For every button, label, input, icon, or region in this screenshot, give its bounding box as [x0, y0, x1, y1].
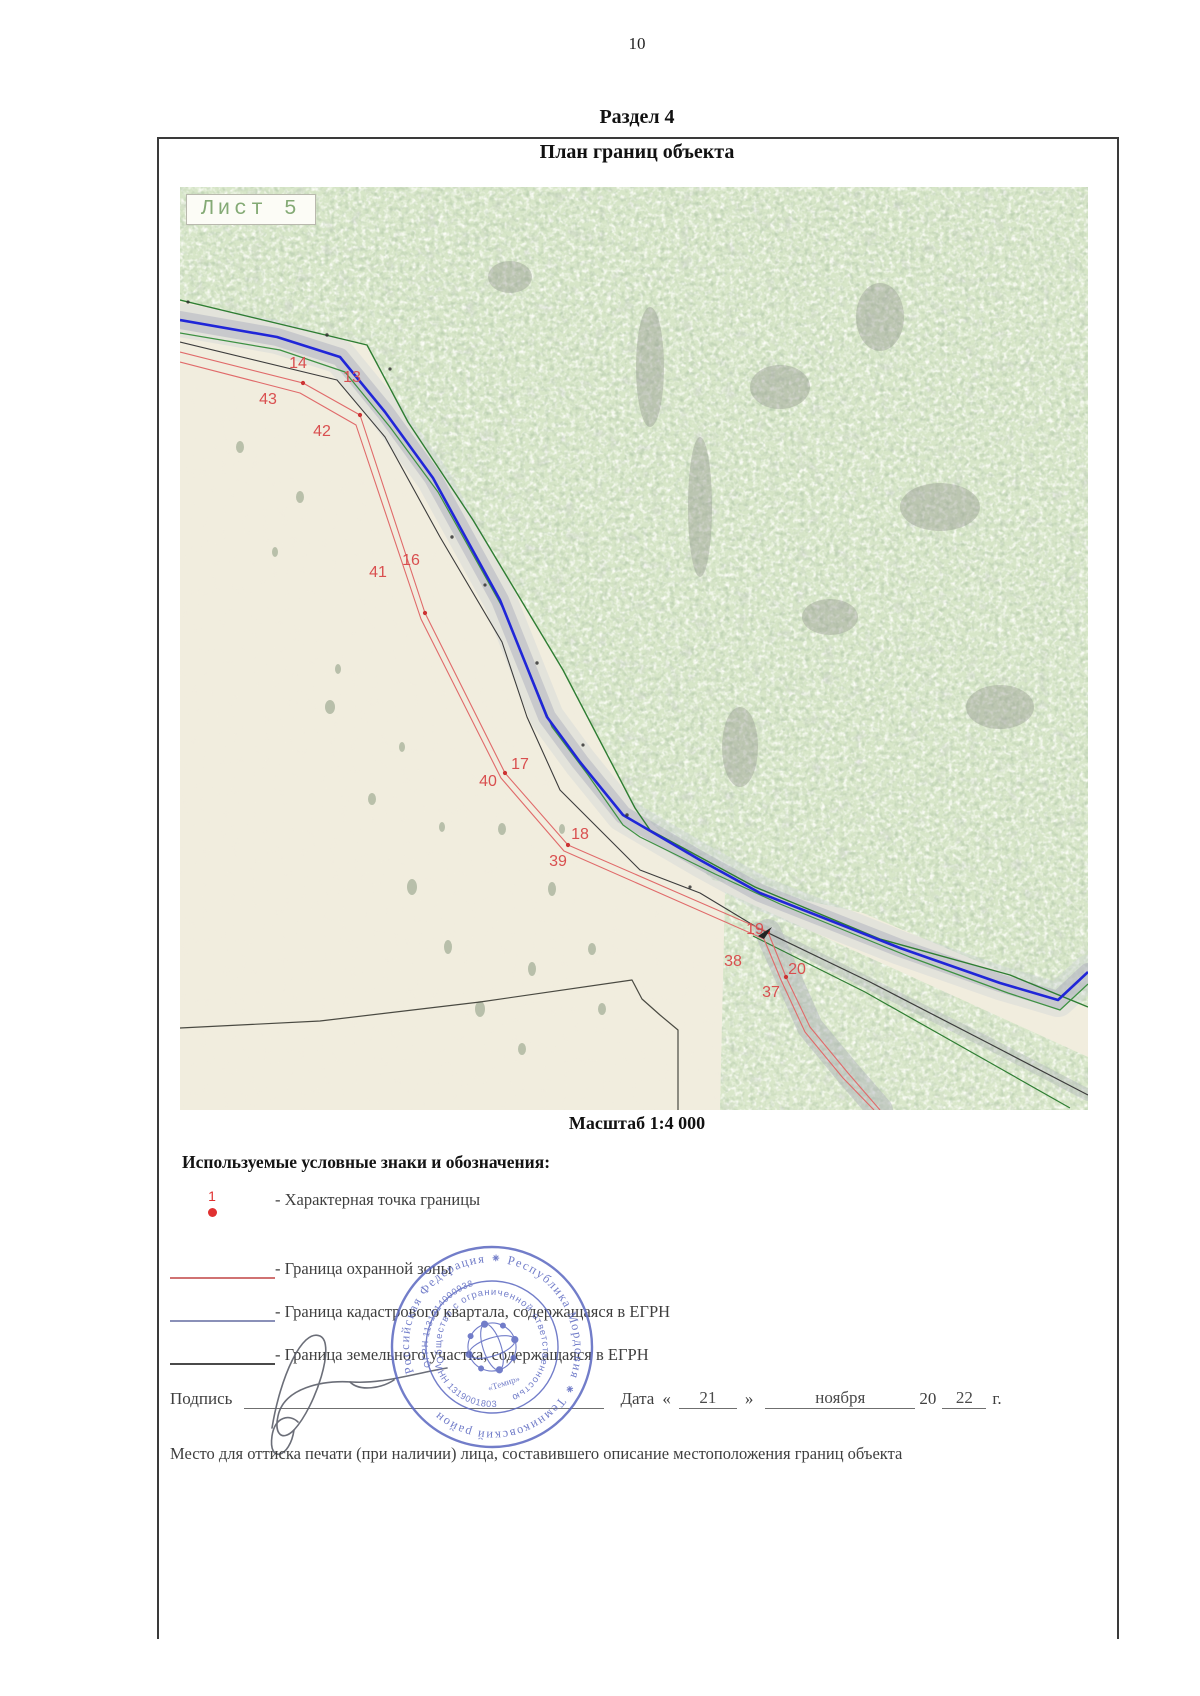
line-sample [170, 1363, 275, 1365]
sheet-label: Лист 5 [186, 194, 316, 225]
boundary-point-label: 41 [369, 564, 387, 581]
signature-row: Подпись Дата « 21 » ноября 20 22 г. [170, 1388, 1050, 1409]
page-number: 10 [157, 34, 1117, 54]
document-title: План границ объекта [157, 141, 1117, 164]
legend-items: 1- Характерная точка границы- Граница ох… [170, 1187, 1040, 1376]
svg-text:Российская Федерация ⁕ Республ: Российская Федерация ⁕ Республика Мордов… [387, 1242, 597, 1452]
boundary-point-label: 18 [571, 826, 589, 843]
date-year-suffix: г. [992, 1389, 1001, 1409]
point-dot-icon [208, 1208, 217, 1217]
boundary-point-label: 16 [402, 552, 420, 569]
signature-label: Подпись [170, 1389, 232, 1409]
legend-item: 1- Характерная точка границы [170, 1187, 1040, 1247]
boundary-line-symbol [170, 1354, 275, 1356]
section-title: Раздел 4 [157, 106, 1117, 129]
boundary-point-label: 20 [788, 961, 806, 978]
stamp-center-name: «Темир» [486, 1373, 521, 1393]
date-month: ноября [765, 1388, 915, 1409]
boundary-point-label: 40 [479, 773, 497, 790]
boundary-point-label: 43 [259, 391, 277, 408]
point-number: 1 [208, 1189, 216, 1203]
boundary-point-label: 37 [762, 984, 780, 1001]
date-year: 22 [942, 1388, 986, 1409]
date-label: Дата [620, 1389, 654, 1409]
legend-item: - Граница земельного участка, содержащая… [170, 1333, 1040, 1376]
boundary-point-label: 38 [724, 953, 742, 970]
date-year-prefix: 20 [919, 1389, 936, 1409]
boundary-point-label: 17 [511, 756, 529, 773]
date-quote-close: » [745, 1389, 754, 1409]
date-quote-open: « [662, 1389, 671, 1409]
boundary-point-label: 39 [549, 853, 567, 870]
legend-item-label: - Характерная точка границы [275, 1187, 480, 1210]
satellite-map-image: 1443134241161740183919382037 [180, 187, 1088, 1110]
line-sample [170, 1277, 275, 1279]
boundary-point-label: 14 [289, 355, 307, 372]
document-page: 10 Раздел 4 План границ объекта [0, 0, 1200, 1696]
boundary-line-symbol [170, 1268, 275, 1270]
boundary-plan-map: 1443134241161740183919382037 Лист 5 [180, 187, 1088, 1110]
stamp-outer-text: Российская Федерация ⁕ Республика Мордов… [387, 1242, 597, 1452]
map-scale-label: Масштаб 1:4 000 [157, 1113, 1117, 1134]
legend-header: Используемые условные знаки и обозначени… [182, 1152, 1040, 1173]
date-day: 21 [679, 1388, 737, 1409]
legend-item: - Граница охранной зоны [170, 1247, 1040, 1290]
boundary-point-label: 42 [313, 423, 331, 440]
boundary-point-label: 19 [746, 921, 764, 938]
line-sample [170, 1320, 275, 1322]
official-stamp: Российская Федерация ⁕ Республика Мордов… [387, 1242, 597, 1452]
globe-network-emblem [462, 1317, 522, 1377]
boundary-line-symbol [170, 1311, 275, 1313]
boundary-point-symbol: 1 [170, 1187, 254, 1217]
stamp-place-note: Место для оттиска печати (при наличии) л… [170, 1444, 1050, 1464]
legend: Используемые условные знаки и обозначени… [170, 1152, 1040, 1376]
legend-item: - Граница кадастрового квартала, содержа… [170, 1290, 1040, 1333]
boundary-point-label: 13 [343, 369, 361, 386]
stamp-outer-circle [387, 1242, 597, 1452]
